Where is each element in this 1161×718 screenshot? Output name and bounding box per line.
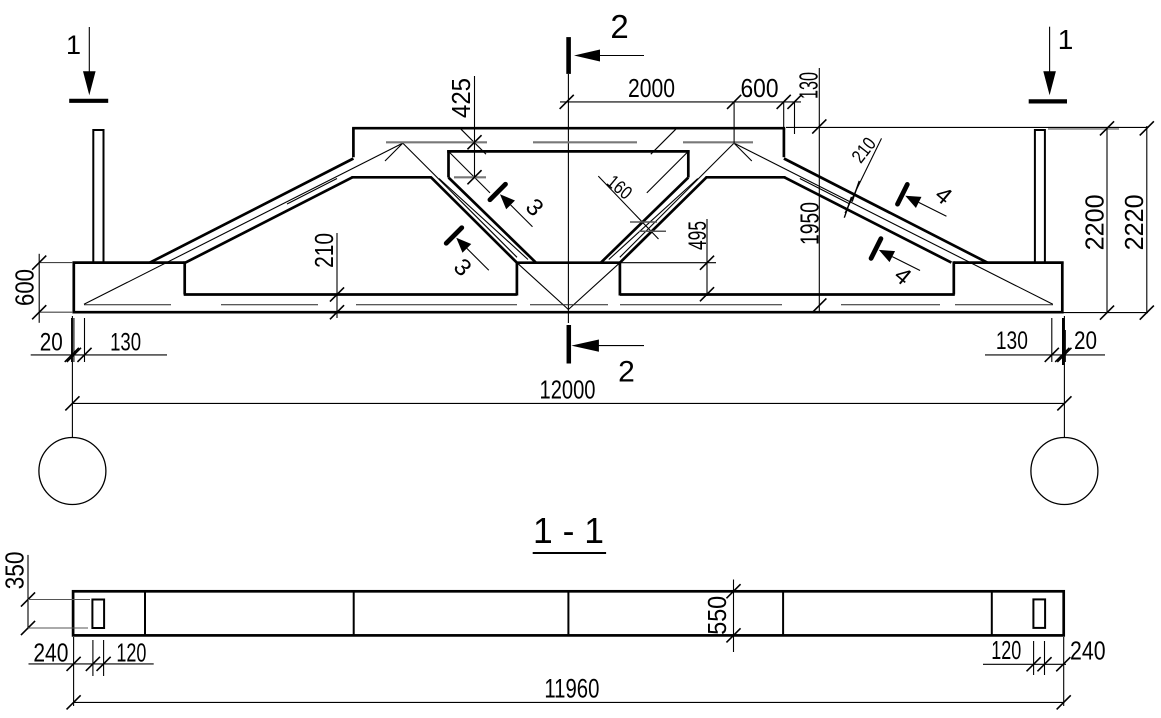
svg-text:350: 350 xyxy=(0,551,30,589)
svg-text:2220: 2220 xyxy=(1119,194,1149,250)
svg-text:600: 600 xyxy=(10,269,40,306)
svg-text:495: 495 xyxy=(684,221,712,250)
svg-text:210: 210 xyxy=(309,233,339,268)
svg-text:120: 120 xyxy=(116,640,146,668)
svg-text:1: 1 xyxy=(66,30,81,60)
svg-text:1: 1 xyxy=(1058,24,1074,55)
svg-text:240: 240 xyxy=(33,640,68,668)
svg-text:11960: 11960 xyxy=(544,673,599,703)
svg-text:120: 120 xyxy=(991,637,1021,665)
svg-text:130: 130 xyxy=(996,327,1028,355)
svg-text:600: 600 xyxy=(741,73,779,103)
svg-text:130: 130 xyxy=(110,328,141,356)
svg-text:1950: 1950 xyxy=(795,202,825,245)
svg-text:1 - 1: 1 - 1 xyxy=(533,510,604,551)
svg-text:240: 240 xyxy=(1070,638,1106,666)
svg-text:425: 425 xyxy=(446,78,476,118)
svg-text:2000: 2000 xyxy=(628,73,675,103)
svg-text:20: 20 xyxy=(1074,327,1097,355)
svg-text:2200: 2200 xyxy=(1080,194,1110,250)
svg-text:12000: 12000 xyxy=(540,377,596,405)
svg-text:2: 2 xyxy=(610,8,628,45)
svg-text:20: 20 xyxy=(40,328,63,356)
svg-text:550: 550 xyxy=(702,596,732,635)
svg-text:2: 2 xyxy=(618,356,635,389)
